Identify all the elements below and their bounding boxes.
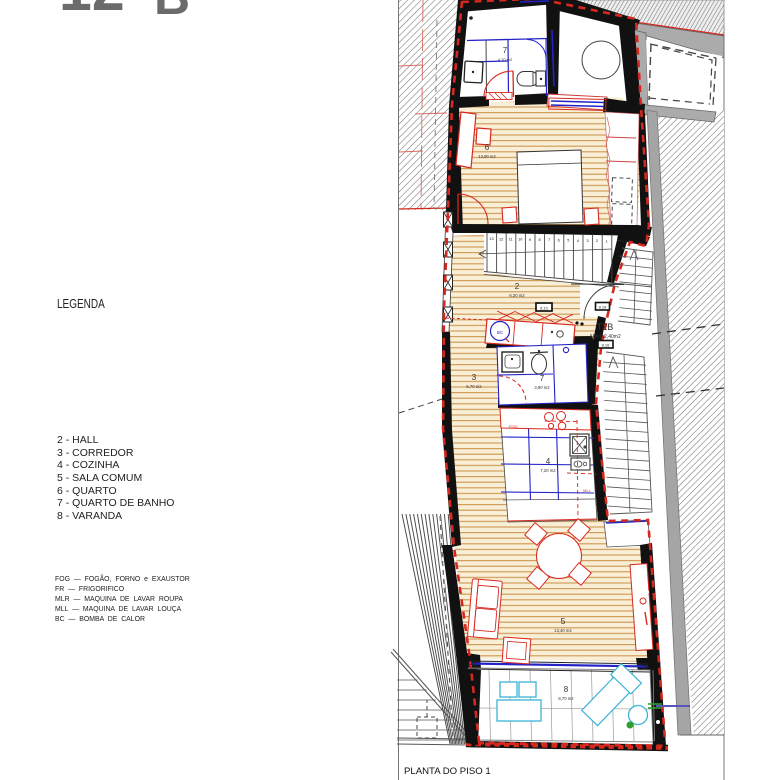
svg-text:4: 4 (577, 239, 579, 243)
svg-text:3: 3 (586, 239, 588, 243)
svg-text:13: 13 (489, 237, 493, 241)
svg-text:8.18: 8.18 (602, 343, 611, 348)
svg-text:6: 6 (485, 143, 490, 152)
svg-text:FOG: FOG (509, 424, 518, 429)
svg-text:7: 7 (548, 238, 550, 242)
svg-text:6: 6 (558, 238, 560, 242)
svg-text:T2B: T2B (597, 322, 614, 332)
svg-text:7,20 m2: 7,20 m2 (540, 468, 556, 473)
svg-text:11: 11 (509, 238, 513, 242)
svg-text:MLL: MLL (583, 489, 590, 493)
svg-text:13,90 m2: 13,90 m2 (478, 154, 496, 159)
svg-text:2: 2 (515, 282, 520, 291)
svg-text:10: 10 (518, 238, 522, 242)
svg-text:2: 2 (596, 239, 598, 243)
svg-text:5,70 m2: 5,70 m2 (466, 384, 482, 389)
svg-text:BC: BC (497, 330, 504, 335)
svg-text:6,30 m2: 6,30 m2 (509, 293, 525, 298)
svg-text:13,40 m2: 13,40 m2 (554, 628, 572, 633)
svg-text:1: 1 (606, 239, 608, 243)
svg-text:7: 7 (540, 374, 545, 383)
svg-text:3: 3 (472, 373, 477, 382)
svg-text:8.18: 8.18 (599, 305, 608, 310)
svg-text:8: 8 (538, 238, 540, 242)
svg-text:8.10: 8.10 (540, 305, 549, 310)
svg-text:3,90 m2: 3,90 m2 (534, 385, 550, 390)
svg-text:4,70 m2: 4,70 m2 (498, 57, 513, 62)
svg-text:8,70 m2: 8,70 m2 (558, 696, 574, 701)
svg-text:7: 7 (503, 46, 508, 55)
svg-text:AB=112,40m2: AB=112,40m2 (589, 334, 621, 340)
svg-text:5: 5 (567, 239, 569, 243)
svg-text:4: 4 (546, 457, 551, 466)
svg-text:9: 9 (529, 238, 531, 242)
svg-text:8: 8 (564, 685, 569, 694)
svg-text:5: 5 (561, 616, 566, 626)
svg-text:12: 12 (499, 237, 503, 241)
